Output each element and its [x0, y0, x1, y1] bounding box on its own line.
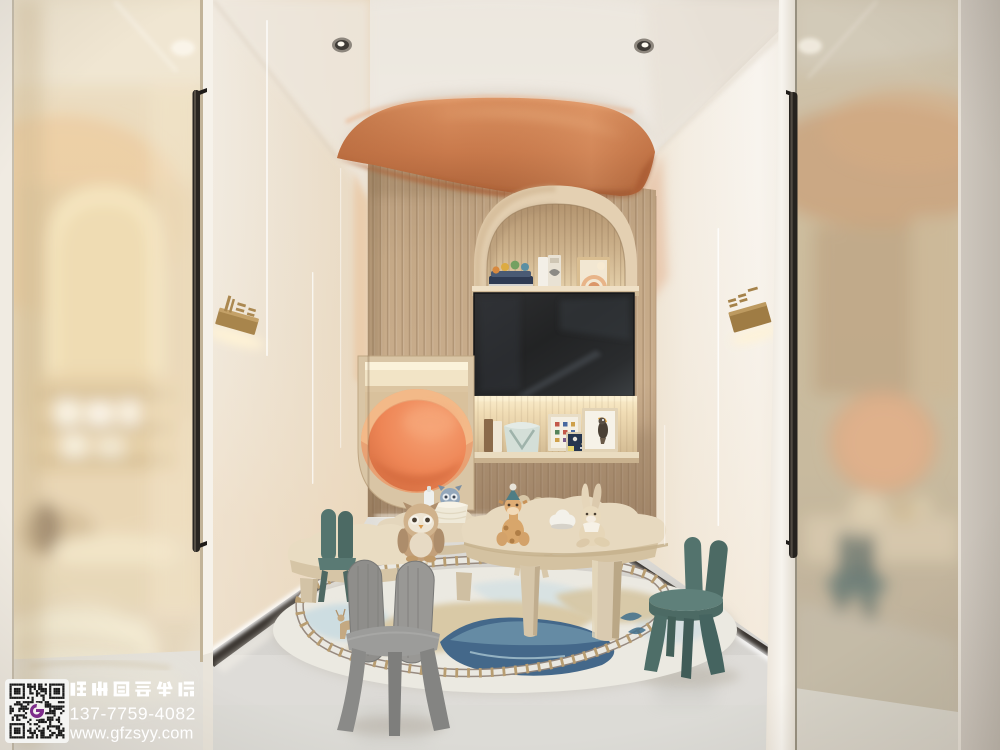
- svg-text:137-7759-4082: 137-7759-4082: [70, 704, 197, 724]
- svg-text:www.gfzsyy.com: www.gfzsyy.com: [69, 725, 194, 743]
